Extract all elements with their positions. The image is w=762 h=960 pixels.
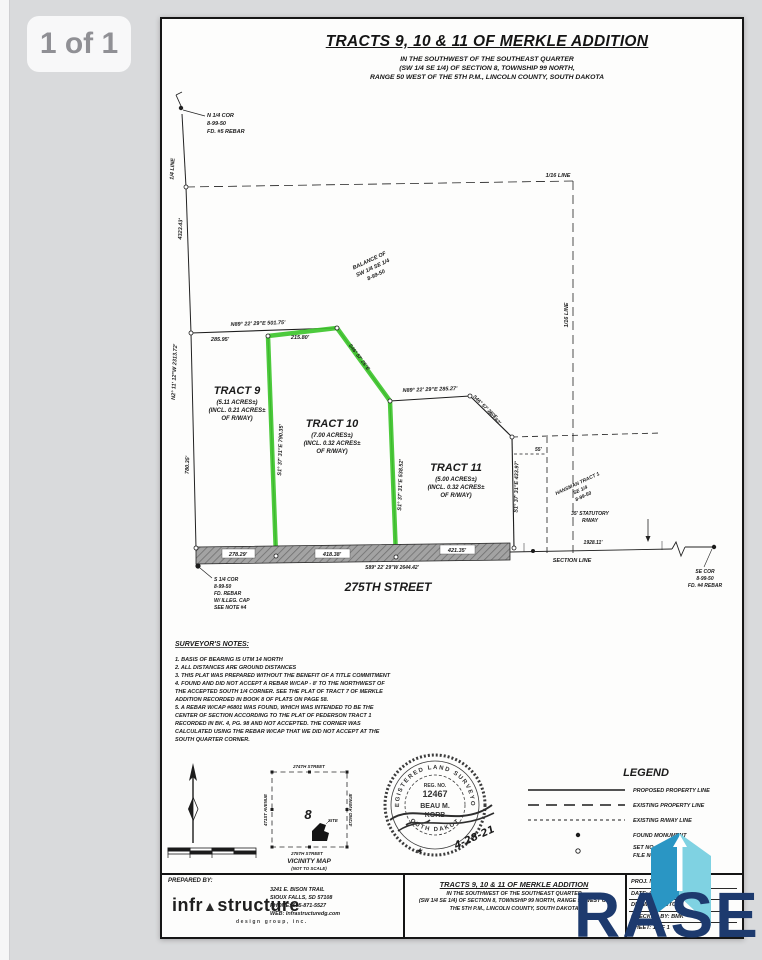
dim-4323: 4323.43' <box>178 218 185 241</box>
svg-text:(INCL. 0.32 ACRES±: (INCL. 0.32 ACRES± <box>428 485 485 491</box>
svg-text:OF R/WAY): OF R/WAY) <box>440 493 471 499</box>
legend-sample-found-monument <box>576 833 580 837</box>
n-cor-label-2: 8-99-50 <box>207 121 226 127</box>
hansman-label: HANSMAN TRACT 1 SE 1/4 8-99-50 <box>555 471 607 510</box>
dim-55: 55' <box>535 447 543 453</box>
vicinity-site-marker <box>312 823 329 841</box>
seal-name-1: BEAU M. <box>420 803 450 810</box>
vicinity-avenue-right: 472ND AVENUE <box>348 793 353 828</box>
svg-text:(INCL. 0.21 ACRES±: (INCL. 0.21 ACRES± <box>209 408 266 414</box>
page-indicator: 1 of 1 <box>27 16 131 72</box>
north-line-bearing: N89° 22' 29"E 501.75' <box>230 320 286 328</box>
svg-text:(5.11 ACRES±): (5.11 ACRES±) <box>217 400 258 406</box>
svg-text:(5.00 ACRES±): (5.00 ACRES±) <box>435 477 476 483</box>
dim-285: 285.95' <box>210 337 230 343</box>
firm-subtitle: design group, inc. <box>236 919 308 925</box>
vicinity-street-top: 274TH STREET <box>292 764 325 769</box>
sixteenth-line-top-label: 1/16 LINE <box>546 173 571 179</box>
s-cor-label-2: 8-99-50 <box>214 584 231 590</box>
notes-heading: SURVEYOR'S NOTES: <box>175 641 249 648</box>
svg-text:ADDITION RECORDED IN BOOK 8 OF: ADDITION RECORDED IN BOOK 8 OF PLATS ON … <box>174 697 329 703</box>
se-corner-monument <box>712 545 716 549</box>
statutory-arrow <box>646 519 651 542</box>
legend-sample-set-monument <box>576 849 580 853</box>
seal-star-icon: ★ <box>416 847 424 855</box>
section-line-label: SECTION LINE <box>553 558 592 564</box>
vicinity-section-number: 8 <box>304 807 312 822</box>
svg-text:5. A REBAR W/CAP #6801 WAS FOU: 5. A REBAR W/CAP #6801 WAS FOUND, WHICH … <box>175 705 374 711</box>
diag-t10-bearing: S46° 57' 25"E <box>347 343 371 372</box>
sixteenth-line-right-label: 1/16 LINE <box>564 302 570 327</box>
svg-text:CALCULATED USING THE REBAR W/C: CALCULATED USING THE REBAR W/CAP THAT WE… <box>175 729 380 735</box>
vicinity-caption: VICINITY MAP <box>287 858 331 865</box>
s-cor-label-4: W/ ILLEG. CAP <box>214 598 250 604</box>
south-quarter-corner-monument <box>195 563 212 578</box>
firm-logo-triangle-icon: ▲ <box>203 898 217 914</box>
street-name: 275TH STREET <box>344 580 433 594</box>
svg-text:418.38': 418.38' <box>322 552 342 558</box>
street-bearing: S89° 22' 29"W 2644.42' <box>365 565 420 571</box>
svg-text:2. ALL DISTANCES ARE GROUND DI: 2. ALL DISTANCES ARE GROUND DISTANCES <box>174 665 297 671</box>
found-monument-dot <box>531 549 535 553</box>
firm-address: 3241 E. BISON TRAIL SIOUX FALLS, SD 5710… <box>270 886 340 918</box>
dim-215: 215.80' <box>290 335 310 341</box>
plat-drawing: N 1/4 COR 8-99-50 FD. #5 REBAR 1/4 LINE … <box>162 19 739 875</box>
corner-monuments <box>184 185 516 559</box>
dim-780: 780.35' <box>185 455 192 474</box>
svg-text:(7.00 ACRES±): (7.00 ACRES±) <box>311 433 352 439</box>
svg-text:RECORDED IN BK. 4, PG. 98 AND: RECORDED IN BK. 4, PG. 98 AND NOT ACCEPT… <box>175 721 361 727</box>
tract10-label: TRACT 10 (7.00 ACRES±) (INCL. 0.32 ACRES… <box>304 418 361 455</box>
bdy-11-e-bearing: S1° 37' 31"E 433.97' <box>514 461 521 513</box>
svg-text:OF R/WAY): OF R/WAY) <box>316 449 347 455</box>
plat-document: TRACTS 9, 10 & 11 OF MERKLE ADDITION IN … <box>160 17 744 939</box>
vicinity-avenue-left: 471ST AVENUE <box>263 793 268 827</box>
statutory-rw-label-2: R/WAY <box>582 518 599 524</box>
s-cor-label-3: FD. REBAR <box>214 591 242 597</box>
svg-text:CENTER OF SECTION ACCORDING TO: CENTER OF SECTION ACCORDING TO THE PLAT … <box>175 713 371 719</box>
vicinity-street-bottom: 275TH STREET <box>290 851 323 856</box>
notes-body: 1. BASIS OF BEARING IS UTM 14 NORTH 2. A… <box>174 657 391 743</box>
viewer-canvas: 1 of 1 TRACTS 9, 10 & 11 OF MERKLE ADDIT… <box>0 0 762 960</box>
s-cor-label-1: S 1/4 COR <box>214 577 239 583</box>
n-cor-label-1: N 1/4 COR <box>207 113 234 119</box>
north-arrow <box>188 763 198 843</box>
section-line-east <box>510 541 714 567</box>
seal-reg-number: 12467 <box>422 789 447 799</box>
legend-title: LEGEND <box>623 767 669 779</box>
svg-text:TRACT 11: TRACT 11 <box>430 462 482 474</box>
vicinity-scale-note: (NOT TO SCALE) <box>291 866 327 871</box>
statutory-rw-label-1: 35' STATUTORY <box>571 511 609 517</box>
tract9-label: TRACT 9 (5.11 ACRES±) (INCL. 0.21 ACRES±… <box>209 385 266 422</box>
west-line-bearing: N2° 11' 12"W 2313.72' <box>171 343 179 400</box>
bdy-10-11-bearing: S1° 37' 31"E 538.52' <box>397 458 405 510</box>
dim-1928: 1928.11' <box>584 540 604 546</box>
legend-item-3: EXISTING R/WAY LINE <box>633 818 692 824</box>
svg-text:3. THIS PLAT WAS PREPARED WITH: 3. THIS PLAT WAS PREPARED WITHOUT THE BE… <box>175 673 391 679</box>
seal-date: 4-28-21 <box>452 824 497 852</box>
se-cor-label-3: FD. #4 REBAR <box>688 583 723 589</box>
n-cor-label-3: FD. #5 REBAR <box>207 129 245 135</box>
vicinity-map: 274TH STREET 275TH STREET 471ST AVENUE 4… <box>263 764 353 871</box>
balance-label: BALANCE OF SW 1/4 SE 1/4 8-99-50 <box>352 250 395 285</box>
svg-text:TRACT 10: TRACT 10 <box>306 418 359 430</box>
svg-text:4. FOUND AND DID NOT ACCEPT A: 4. FOUND AND DID NOT ACCEPT A REBAR W/CA… <box>174 681 385 687</box>
page-edge-strip <box>0 0 10 960</box>
scale-bar <box>168 848 256 858</box>
rase-watermark: RASE <box>574 878 760 952</box>
svg-text:THE ACCEPTED SOUTH 1/4 CORNER.: THE ACCEPTED SOUTH 1/4 CORNER. SEE THE P… <box>175 689 383 695</box>
legend-item-2: EXISTING PROPERTY LINE <box>633 803 705 809</box>
north-quarter-corner-monument <box>176 92 205 116</box>
bdy-9-10-bearing: S1° 37' 31"E 790.35' <box>277 423 285 475</box>
s-cor-label-5: SEE NOTE #4 <box>214 605 246 611</box>
se-cor-label-1: SE COR <box>695 569 715 575</box>
se-cor-label-2: 8-99-50 <box>696 576 713 582</box>
quarter-line-label: 1/4 LINE <box>169 158 176 180</box>
mid-line-bearing: N89° 22' 29"E 285.27' <box>402 386 458 394</box>
svg-text:1. BASIS OF BEARING IS UTM 14: 1. BASIS OF BEARING IS UTM 14 NORTH <box>175 657 284 663</box>
svg-text:TRACT 9: TRACT 9 <box>214 385 261 397</box>
prepared-by-label: PREPARED BY: <box>168 878 213 884</box>
svg-text:SOUTH QUARTER CORNER.: SOUTH QUARTER CORNER. <box>175 737 250 743</box>
svg-text:421.35': 421.35' <box>447 548 467 554</box>
svg-text:(INCL. 0.32 ACRES±: (INCL. 0.32 ACRES± <box>304 441 361 447</box>
svg-text:278.29': 278.29' <box>228 552 248 558</box>
tract11-label: TRACT 11 (5.00 ACRES±) (INCL. 0.32 ACRES… <box>428 462 485 499</box>
legend-item-1: PROPOSED PROPERTY LINE <box>633 788 710 794</box>
svg-text:OF R/WAY): OF R/WAY) <box>221 416 252 422</box>
